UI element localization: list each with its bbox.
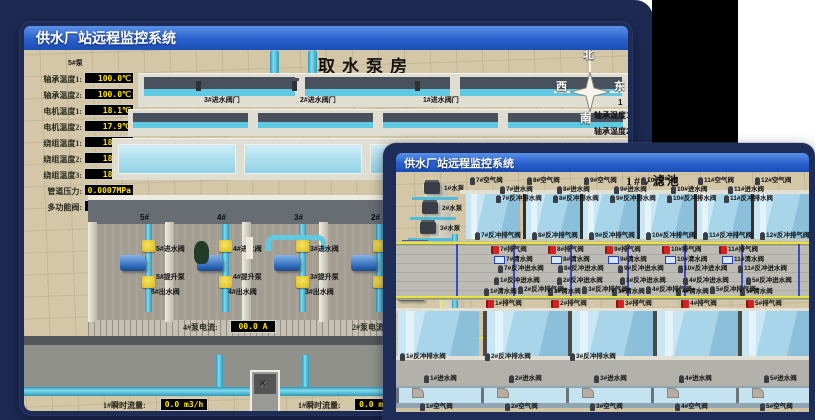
inlet-valve-label[interactable]: 9#进水阀 bbox=[614, 186, 647, 194]
backwash-inlet-valve-label[interactable]: 4#反冲进水阀 bbox=[683, 277, 729, 285]
backwash-drain-valve-label[interactable]: 1#反冲排水阀 bbox=[400, 353, 446, 361]
elbow-pipe-icon bbox=[667, 388, 679, 398]
clean-water-valve-label[interactable]: 9#清水阀 bbox=[608, 256, 647, 264]
bay4-riser bbox=[222, 224, 229, 312]
air-valve-label[interactable]: 1#空气阀 bbox=[420, 403, 453, 411]
bay-number: 2# bbox=[371, 213, 380, 222]
front-window-content: 1#V滤池 1#水泵 2#水泵 3#水泵 1#风机 2#风机 3#风机 bbox=[396, 172, 809, 412]
air-valve-label[interactable]: 8#空气阀 bbox=[527, 177, 560, 185]
bay3-pump-icon[interactable] bbox=[274, 255, 300, 271]
meter-cabinet[interactable] bbox=[250, 370, 280, 411]
bay5-inlet-valve-icon[interactable] bbox=[142, 240, 155, 252]
bay5-pump-icon[interactable] bbox=[120, 255, 146, 271]
inlet-gate-label: 1#进水阀门 bbox=[423, 95, 459, 105]
elbow-pipe-icon bbox=[582, 388, 594, 398]
backwash-air-line bbox=[396, 242, 809, 244]
exhaust-valve-label[interactable]: 5#排气阀 bbox=[746, 300, 782, 308]
outfall-stub-pipe bbox=[216, 355, 223, 390]
pump4-current-label: 4#泵电流: bbox=[183, 322, 218, 333]
air-valve-label[interactable]: 7#空气阀 bbox=[470, 177, 503, 185]
right-readout-label: 轴承温度2 bbox=[594, 126, 628, 137]
inlet-valve-label[interactable]: 7#进水阀 bbox=[500, 186, 533, 194]
front-window[interactable]: 供水厂站远程监控系统 1#V滤池 1#水泵 2#水泵 3#水泵 1#风机 2#风… bbox=[383, 143, 815, 420]
air-valve-label[interactable]: 5#空气阀 bbox=[760, 403, 793, 411]
backwash-airvent-valve-label[interactable]: 12#反冲排气阀 bbox=[760, 232, 809, 240]
air-valve-label[interactable]: 4#空气阀 bbox=[675, 403, 708, 411]
backwash-inlet-valve-label[interactable]: 10#反冲进水阀 bbox=[678, 265, 727, 273]
backwash-inlet-valve-label[interactable]: 1#反冲进水阀 bbox=[494, 277, 540, 285]
telemetry-readout: 轴承温度1:100.0℃ bbox=[26, 72, 136, 86]
gate-valve-icon[interactable] bbox=[292, 81, 297, 91]
bay-number: 5# bbox=[140, 213, 149, 222]
bay-number: 4# bbox=[217, 213, 226, 222]
elbow-pipe-icon bbox=[752, 388, 764, 398]
inlet-valve-label[interactable]: 5#进水阀 bbox=[764, 375, 797, 383]
pump-ref-label: 5#泵 bbox=[68, 58, 83, 68]
backwash-airvent-valve-label[interactable]: 10#反冲排气阀 bbox=[646, 232, 695, 240]
elbow-pipe-icon bbox=[497, 388, 509, 398]
exhaust-valve-label[interactable]: 10#排气阀 bbox=[662, 246, 701, 254]
backwash-inlet-valve-label[interactable]: 2#反冲进水阀 bbox=[557, 277, 603, 285]
exhaust-valve-label[interactable]: 11#排气阀 bbox=[719, 246, 758, 254]
air-valve-label[interactable]: 9#空气阀 bbox=[584, 177, 617, 185]
filter-cell bbox=[568, 311, 653, 356]
right-readout-label: 轴承温度1 bbox=[594, 110, 628, 121]
gate-valve-icon[interactable] bbox=[415, 81, 420, 91]
clean-water-valve-label[interactable]: 10#清水阀 bbox=[665, 256, 707, 264]
air-valve-label[interactable]: 11#空气阀 bbox=[698, 177, 734, 185]
inlet-valve-label[interactable]: 1#进水阀 bbox=[424, 375, 457, 383]
exhaust-valve-label[interactable]: 8#排气阀 bbox=[548, 246, 584, 254]
pump2-current-label: 2#泵电流 bbox=[352, 322, 384, 333]
pump4-current-value: 00.0 A bbox=[230, 320, 276, 333]
filter-cell bbox=[738, 311, 809, 356]
bay4-pump-label: 4#提升泵 bbox=[233, 272, 262, 282]
backwash-airvent-valve-label[interactable]: 8#反冲排气阀 bbox=[532, 232, 578, 240]
bay2-pump-icon[interactable] bbox=[351, 255, 377, 271]
backwash-airvent-valve-label[interactable]: 11#反冲排气阀 bbox=[703, 232, 752, 240]
inlet-valve-label[interactable]: 2#进水阀 bbox=[509, 375, 542, 383]
backwash-inlet-valve-label[interactable]: 5#反冲进水阀 bbox=[746, 277, 792, 285]
filter-cell bbox=[653, 311, 738, 356]
filter-cell bbox=[398, 311, 479, 356]
backwash-airvent-valve-label[interactable]: 9#反冲排气阀 bbox=[589, 232, 635, 240]
bay4-inlet-valve-icon[interactable] bbox=[219, 240, 232, 252]
flow1-value: 0.0 m3/h bbox=[160, 398, 208, 411]
bay3-inlet-valve-icon[interactable] bbox=[296, 240, 309, 252]
bay3-outlet-valve-label: 3#出水阀 bbox=[305, 287, 334, 297]
compass: 北 西 南 东 bbox=[552, 50, 628, 134]
air-valve-label[interactable]: 12#空气阀 bbox=[755, 177, 791, 185]
backwash-drain-valve-label[interactable]: 3#反冲排水阀 bbox=[570, 353, 616, 361]
inlet-gate-label: 2#进水阀门 bbox=[300, 95, 336, 105]
back-window-title: 供水厂站远程监控系统 bbox=[36, 28, 176, 48]
inlet-valve-label[interactable]: 11#进水阀 bbox=[728, 186, 764, 194]
backwash-inlet-valve-label[interactable]: 7#反冲进水阀 bbox=[498, 265, 544, 273]
flow2-label: 1#瞬时流量: bbox=[298, 400, 341, 411]
backwash-drain-valve-label[interactable]: 11#反冲排水阀 bbox=[724, 195, 773, 203]
front-window-title: 供水厂站远程监控系统 bbox=[404, 155, 514, 171]
air-valve-label[interactable]: 10#空气阀 bbox=[641, 177, 677, 185]
backwash-airvent-valve-label[interactable]: 2#反冲排气阀 bbox=[518, 286, 564, 294]
inlet-valve-label[interactable]: 3#进水阀 bbox=[594, 375, 627, 383]
clean-water-valve-label[interactable]: 11#清水阀 bbox=[722, 256, 764, 264]
exhaust-valve-label[interactable]: 4#排气阀 bbox=[681, 300, 717, 308]
inlet-valve-label[interactable]: 4#进水阀 bbox=[679, 375, 712, 383]
backwash-inlet-valve-label[interactable]: 8#反冲进水阀 bbox=[558, 265, 604, 273]
backwash-inlet-valve-label[interactable]: 11#反冲进水阀 bbox=[738, 265, 787, 273]
riser-pipe bbox=[270, 50, 279, 75]
compass-south: 南 bbox=[580, 110, 591, 126]
telemetry-readout: 电机温度2:17.9℃ bbox=[26, 120, 136, 134]
backwash-drain-valve-label[interactable]: 9#反冲排水阀 bbox=[610, 195, 656, 203]
backwash-inlet-valve-label[interactable]: 3#反冲进水阀 bbox=[620, 277, 666, 285]
flow1-label: 1#瞬时流量: bbox=[103, 400, 146, 411]
inlet-valve-label[interactable]: 10#进水阀 bbox=[671, 186, 707, 194]
bay-number: 3# bbox=[294, 213, 303, 222]
front-window-titlebar[interactable]: 供水厂站远程监控系统 bbox=[396, 153, 809, 172]
exhaust-valve-label[interactable]: 3#排气阀 bbox=[616, 300, 652, 308]
bay5-inlet-valve-label: 5#进水阀 bbox=[156, 244, 185, 254]
telemetry-readout: 电机温度1:18.1℃ bbox=[26, 104, 136, 118]
compass-west: 西 bbox=[556, 78, 567, 94]
inlet-gate-label: 3#进水阀门 bbox=[204, 95, 240, 105]
backwash-airvent-valve-label[interactable]: 5#反冲排气阀 bbox=[710, 286, 756, 294]
backwash-drain-valve-label[interactable]: 7#反冲排水阀 bbox=[496, 195, 542, 203]
elbow-pipe-icon bbox=[412, 388, 424, 398]
bay4-outlet-valve-label: 4#出水阀 bbox=[228, 287, 257, 297]
compass-north: 北 bbox=[583, 50, 594, 62]
filter-cell bbox=[483, 311, 568, 356]
clean-water-valve-label[interactable]: 8#清水阀 bbox=[551, 256, 590, 264]
bay5-pump-label: 5#提升泵 bbox=[156, 272, 185, 282]
back-window-titlebar[interactable]: 供水厂站远程监控系统 bbox=[24, 26, 628, 50]
telemetry-readout: 轴承温度2:100.0℃ bbox=[26, 88, 136, 102]
clean-water-valve-label[interactable]: 7#清水阀 bbox=[494, 256, 533, 264]
backwash-drain-valve-label[interactable]: 8#反冲排水阀 bbox=[553, 195, 599, 203]
bay3-inlet-valve-label: 3#进水阀 bbox=[310, 244, 339, 254]
backwash-inlet-valve-label[interactable]: 9#反冲进水阀 bbox=[618, 265, 664, 273]
outfall-stub-pipe bbox=[302, 355, 309, 390]
exhaust-valve-label[interactable]: 7#排气阀 bbox=[491, 246, 527, 254]
backwash-airvent-valve-label[interactable]: 4#反冲排气阀 bbox=[646, 286, 692, 294]
backwash-drain-valve-label[interactable]: 10#反冲排水阀 bbox=[667, 195, 716, 203]
gate-valve-icon[interactable] bbox=[196, 81, 201, 91]
exhaust-valve-label[interactable]: 9#排气阀 bbox=[605, 246, 641, 254]
bay2-riser bbox=[376, 224, 383, 312]
inlet-valve-label[interactable]: 8#进水阀 bbox=[557, 186, 590, 194]
backwash-airvent-valve-label[interactable]: 7#反冲排气阀 bbox=[475, 232, 521, 240]
pump2-label: 2#水泵 bbox=[442, 205, 462, 213]
backwash-airvent-valve-label[interactable]: 3#反冲排气阀 bbox=[582, 286, 628, 294]
compass-east: 东 bbox=[614, 78, 625, 94]
air-valve-label[interactable]: 2#空气阀 bbox=[505, 403, 538, 411]
pillar bbox=[246, 237, 253, 259]
operator-figure bbox=[194, 241, 209, 264]
exhaust-valve-label[interactable]: 2#排气阀 bbox=[551, 300, 587, 308]
air-valve-label[interactable]: 3#空气阀 bbox=[590, 403, 623, 411]
shelf-pipe bbox=[410, 217, 456, 220]
bay3-pump-label: 3#提升泵 bbox=[310, 272, 339, 282]
right-pump-ref-partial: 1 bbox=[618, 98, 622, 107]
riser-pipe bbox=[308, 50, 317, 75]
bay5-riser bbox=[145, 224, 152, 312]
exhaust-valve-label[interactable]: 1#排气阀 bbox=[486, 300, 522, 308]
backwash-drain-valve-label[interactable]: 2#反冲排水阀 bbox=[485, 353, 531, 361]
bay5-outlet-valve-label: 5#出水阀 bbox=[151, 287, 180, 297]
